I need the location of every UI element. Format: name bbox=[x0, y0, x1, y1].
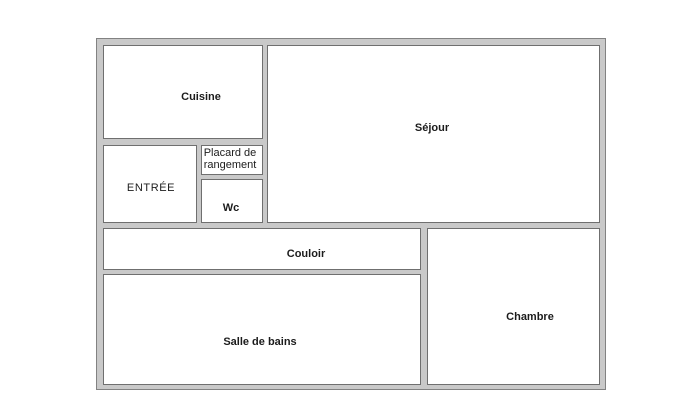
room-label-cuisine: Cuisine bbox=[181, 91, 221, 103]
room-couloir bbox=[103, 228, 421, 270]
page: Cuisine Séjour ENTRÉE Placard de rangeme… bbox=[0, 0, 700, 407]
floor-plan-inner: Cuisine Séjour ENTRÉE Placard de rangeme… bbox=[97, 39, 605, 389]
room-label-entree: ENTRÉE bbox=[127, 182, 175, 194]
room-sejour bbox=[267, 45, 600, 223]
room-label-sejour: Séjour bbox=[415, 122, 449, 134]
floor-plan: Cuisine Séjour ENTRÉE Placard de rangeme… bbox=[96, 38, 606, 390]
room-label-placard-de-rangement: Placard de rangement bbox=[201, 147, 259, 171]
room-wc bbox=[201, 179, 263, 223]
room-label-wc: Wc bbox=[223, 202, 240, 214]
room-label-couloir: Couloir bbox=[287, 248, 326, 260]
room-chambre bbox=[427, 228, 600, 385]
room-label-salle-de-bains: Salle de bains bbox=[223, 336, 296, 348]
room-label-chambre: Chambre bbox=[506, 311, 554, 323]
room-salle-de-bains bbox=[103, 274, 421, 385]
